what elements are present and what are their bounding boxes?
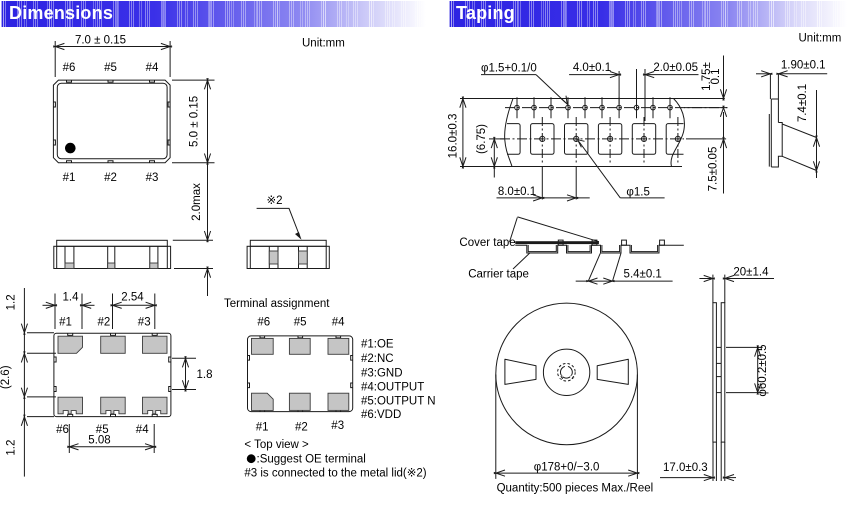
svg-text:2.54: 2.54 xyxy=(121,292,144,304)
svg-text:#4: #4 xyxy=(332,317,345,329)
svg-text:#6: #6 xyxy=(56,424,69,436)
svg-text:#6:VDD: #6:VDD xyxy=(361,409,401,421)
svg-text:#3:GND: #3:GND xyxy=(361,367,403,379)
svg-text:※2: ※2 xyxy=(266,195,282,207)
svg-text:#3: #3 xyxy=(146,172,159,184)
svg-text:φ1.5: φ1.5 xyxy=(626,186,649,198)
svg-text:#1: #1 xyxy=(59,317,72,329)
svg-text:7.5±0.05: 7.5±0.05 xyxy=(708,147,720,192)
svg-text:Cover tape: Cover tape xyxy=(459,237,515,249)
svg-text::Suggest OE terminal: :Suggest OE terminal xyxy=(257,454,366,466)
svg-text:Quantity:500 pieces Max./Reel: Quantity:500 pieces Max./Reel xyxy=(497,483,654,495)
svg-text:5.4±0.1: 5.4±0.1 xyxy=(624,269,662,281)
svg-text:16.0±0.3: 16.0±0.3 xyxy=(448,114,460,159)
svg-text:5.0 ± 0.15: 5.0 ± 0.15 xyxy=(189,96,201,147)
svg-text:17.0±0.3: 17.0±0.3 xyxy=(663,462,708,474)
svg-text:7.0 ± 0.15: 7.0 ± 0.15 xyxy=(75,35,126,47)
svg-text:0.1: 0.1 xyxy=(710,69,722,85)
svg-text:#2: #2 xyxy=(98,317,111,329)
svg-text:#1:OE: #1:OE xyxy=(361,339,394,351)
svg-text:#1: #1 xyxy=(63,172,76,184)
svg-text:#1: #1 xyxy=(256,422,269,434)
svg-text:#4:OUTPUT: #4:OUTPUT xyxy=(361,381,424,393)
svg-text:8.0±0.1: 8.0±0.1 xyxy=(498,186,536,198)
svg-text:#3 is connected to the metal l: #3 is connected to the metal lid(※2) xyxy=(244,468,426,480)
svg-text:#6: #6 xyxy=(63,62,76,74)
svg-text:φ60.2±0.5: φ60.2±0.5 xyxy=(757,344,769,396)
svg-text:1.4: 1.4 xyxy=(63,292,80,304)
svg-text:φ1.5+0.1/0: φ1.5+0.1/0 xyxy=(481,63,537,75)
svg-text:4.0±0.1: 4.0±0.1 xyxy=(573,62,611,74)
svg-text:#4: #4 xyxy=(136,424,149,436)
svg-text:#3: #3 xyxy=(331,420,344,432)
svg-text:φ178+0/−3.0: φ178+0/−3.0 xyxy=(534,462,600,474)
svg-text:2.0±0.05: 2.0±0.05 xyxy=(653,62,698,74)
svg-text:7.4±0.1: 7.4±0.1 xyxy=(797,84,809,122)
svg-text:1.8: 1.8 xyxy=(197,369,213,381)
svg-text:Unit:mm: Unit:mm xyxy=(799,33,842,45)
svg-text:#2: #2 xyxy=(295,422,308,434)
svg-text:#2:NC: #2:NC xyxy=(361,353,394,365)
svg-text:5.08: 5.08 xyxy=(88,435,110,447)
svg-text:#5: #5 xyxy=(294,317,307,329)
svg-text:#3: #3 xyxy=(138,317,151,329)
svg-text:1.2: 1.2 xyxy=(6,294,18,310)
svg-text:Terminal assignment: Terminal assignment xyxy=(224,298,330,310)
svg-text:#6: #6 xyxy=(257,317,270,329)
svg-text:#5: #5 xyxy=(104,62,117,74)
svg-text:Unit:mm: Unit:mm xyxy=(302,38,345,50)
svg-text:Carrier tape: Carrier tape xyxy=(468,269,529,281)
svg-text:20±1.4: 20±1.4 xyxy=(733,267,769,279)
svg-text:#4: #4 xyxy=(146,62,159,74)
svg-text:< Top view >: < Top view > xyxy=(244,439,309,451)
svg-text:#2: #2 xyxy=(104,172,117,184)
svg-text:#5:OUTPUT N: #5:OUTPUT N xyxy=(361,396,436,408)
svg-text:1.90±0.1: 1.90±0.1 xyxy=(781,60,826,72)
svg-text:(2.6): (2.6) xyxy=(0,365,12,389)
svg-text:(6.75): (6.75) xyxy=(476,124,488,154)
svg-text:1.2: 1.2 xyxy=(6,440,18,456)
svg-text:2.0max: 2.0max xyxy=(191,183,203,221)
